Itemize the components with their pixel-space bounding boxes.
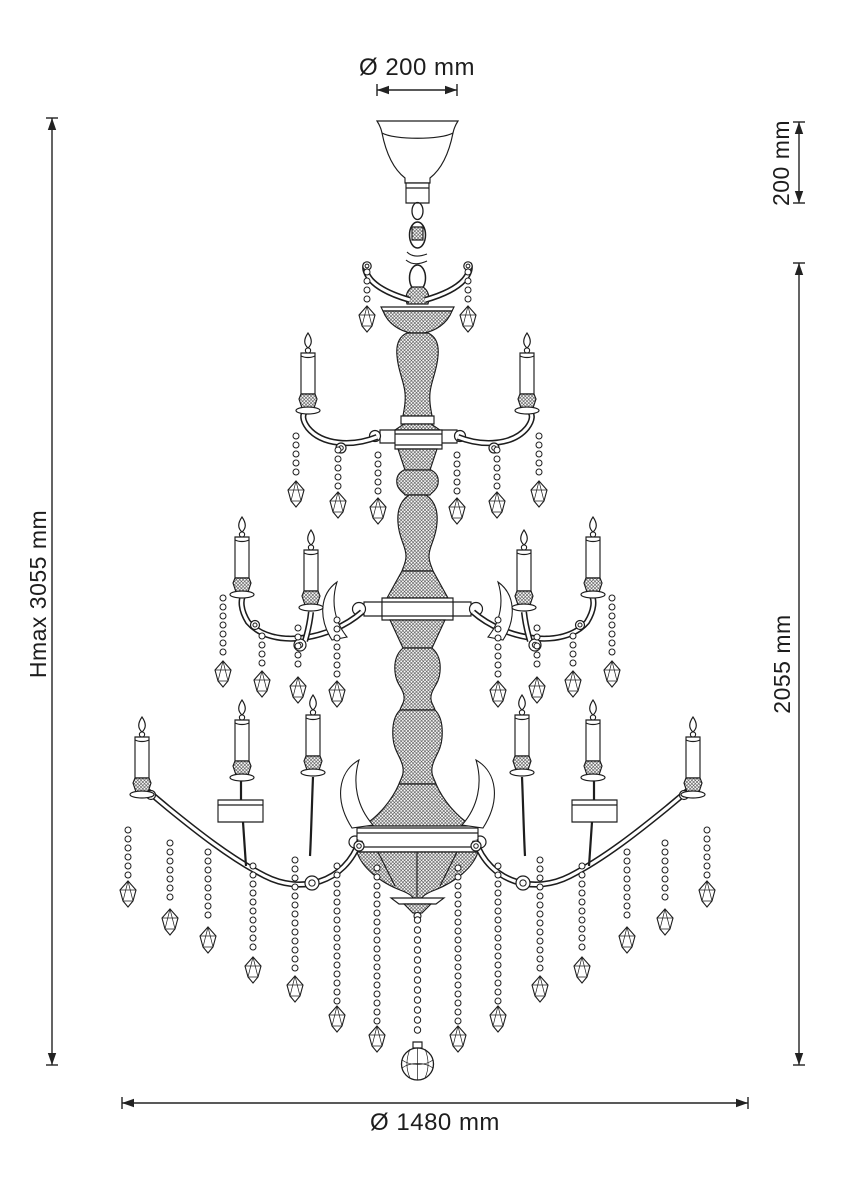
dim-label-bottom-diameter: Ø 1480 mm (335, 1109, 535, 1137)
dim-label-suspension-height: 200 mm (768, 103, 794, 223)
dim-label-top-diameter: Ø 200 mm (317, 54, 517, 82)
chandelier-illustration (0, 0, 848, 1200)
dim-label-fixture-height: 2055 mm (769, 594, 795, 734)
chandelier-body (120, 121, 715, 1080)
dim-label-max-height: Hmax 3055 mm (24, 494, 52, 694)
technical-drawing-page: Ø 200 mm 200 mm 2055 mm Hmax 3055 mm Ø 1… (0, 0, 848, 1200)
